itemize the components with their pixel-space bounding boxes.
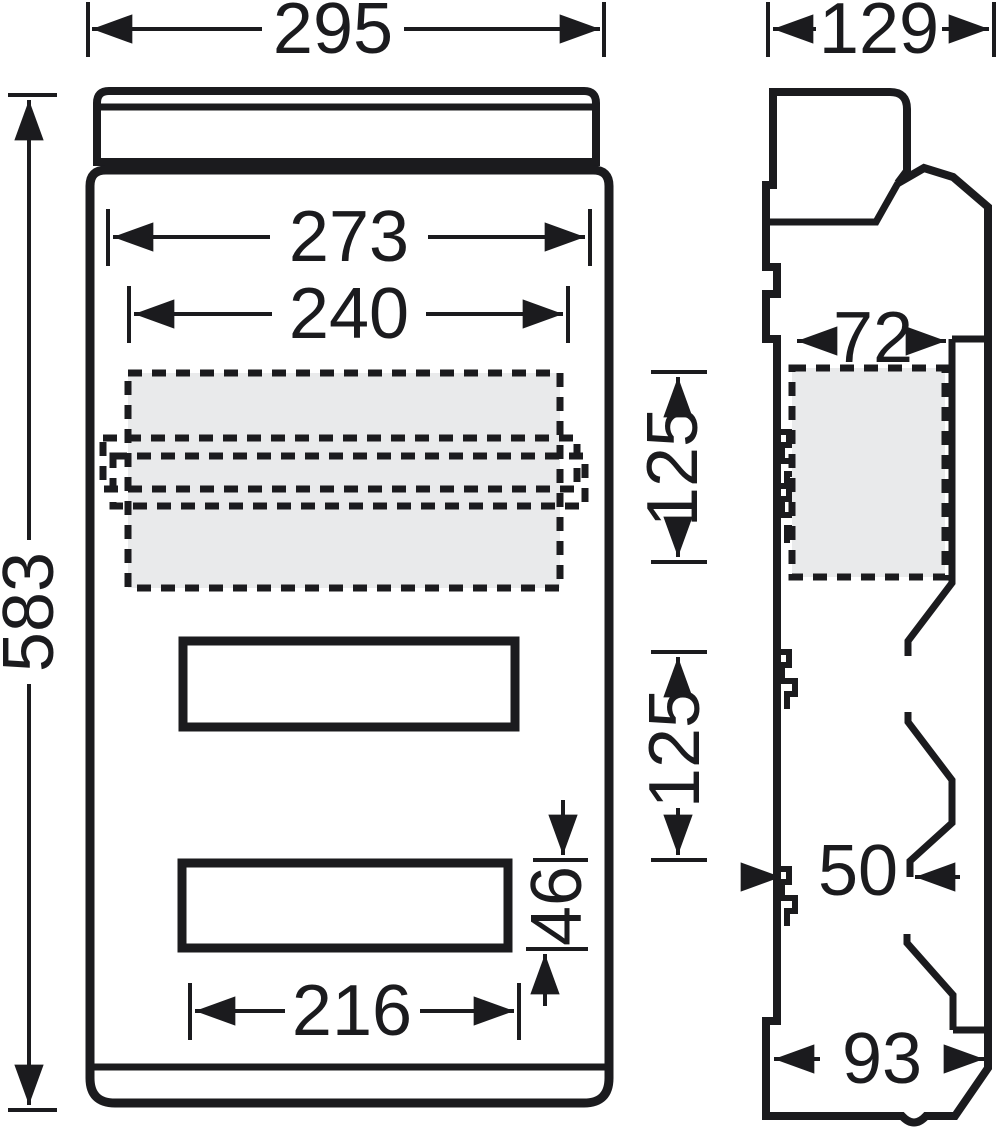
dim-row-pitch-bottom-label: 125 <box>635 688 715 808</box>
side-lid-seam <box>766 183 898 222</box>
dim-overall-width: 295 <box>88 0 604 69</box>
side-duct-middle <box>908 712 952 877</box>
front-lid-outline <box>97 91 596 162</box>
dim-duct-depth-label: 50 <box>818 831 898 911</box>
cutout-slot-2 <box>182 863 508 948</box>
side-view <box>766 92 988 1123</box>
dim-rail-width-label: 240 <box>289 274 409 354</box>
dim-row-pitch-bottom: 125 <box>635 652 715 860</box>
dim-opening-width-label: 273 <box>289 197 409 277</box>
dim-opening-width: 273 <box>108 197 590 277</box>
dim-base-depth: 93 <box>774 1019 984 1099</box>
dim-slot-height-label: 46 <box>517 866 597 946</box>
technical-drawing-page: 295 583 273 240 216 46 125 <box>0 0 1000 1129</box>
dim-base-depth-label: 93 <box>842 1019 922 1099</box>
dim-slot-width-label: 216 <box>292 971 412 1051</box>
dim-overall-depth: 129 <box>768 0 994 69</box>
dim-slot-width: 216 <box>190 971 519 1051</box>
dim-overall-width-label: 295 <box>273 0 393 69</box>
rail-zone-large <box>128 373 560 588</box>
side-profile-outline <box>766 92 988 1123</box>
enclosure-dimension-drawing: 295 583 273 240 216 46 125 <box>0 0 1000 1129</box>
cutout-slot-1 <box>183 641 515 727</box>
dim-slot-height: 46 <box>517 800 597 1006</box>
rail-zone-side <box>792 368 945 577</box>
dim-overall-height: 583 <box>0 95 69 1110</box>
dim-overall-depth-label: 129 <box>819 0 939 69</box>
dim-row-pitch-top-label: 125 <box>633 407 713 527</box>
dim-overall-height-label: 583 <box>0 552 69 672</box>
dim-row-pitch-top: 125 <box>633 372 713 562</box>
dim-rail-width: 240 <box>129 274 568 354</box>
side-duct-lower <box>907 934 953 1030</box>
dim-rail-zone-depth-label: 72 <box>833 298 913 378</box>
